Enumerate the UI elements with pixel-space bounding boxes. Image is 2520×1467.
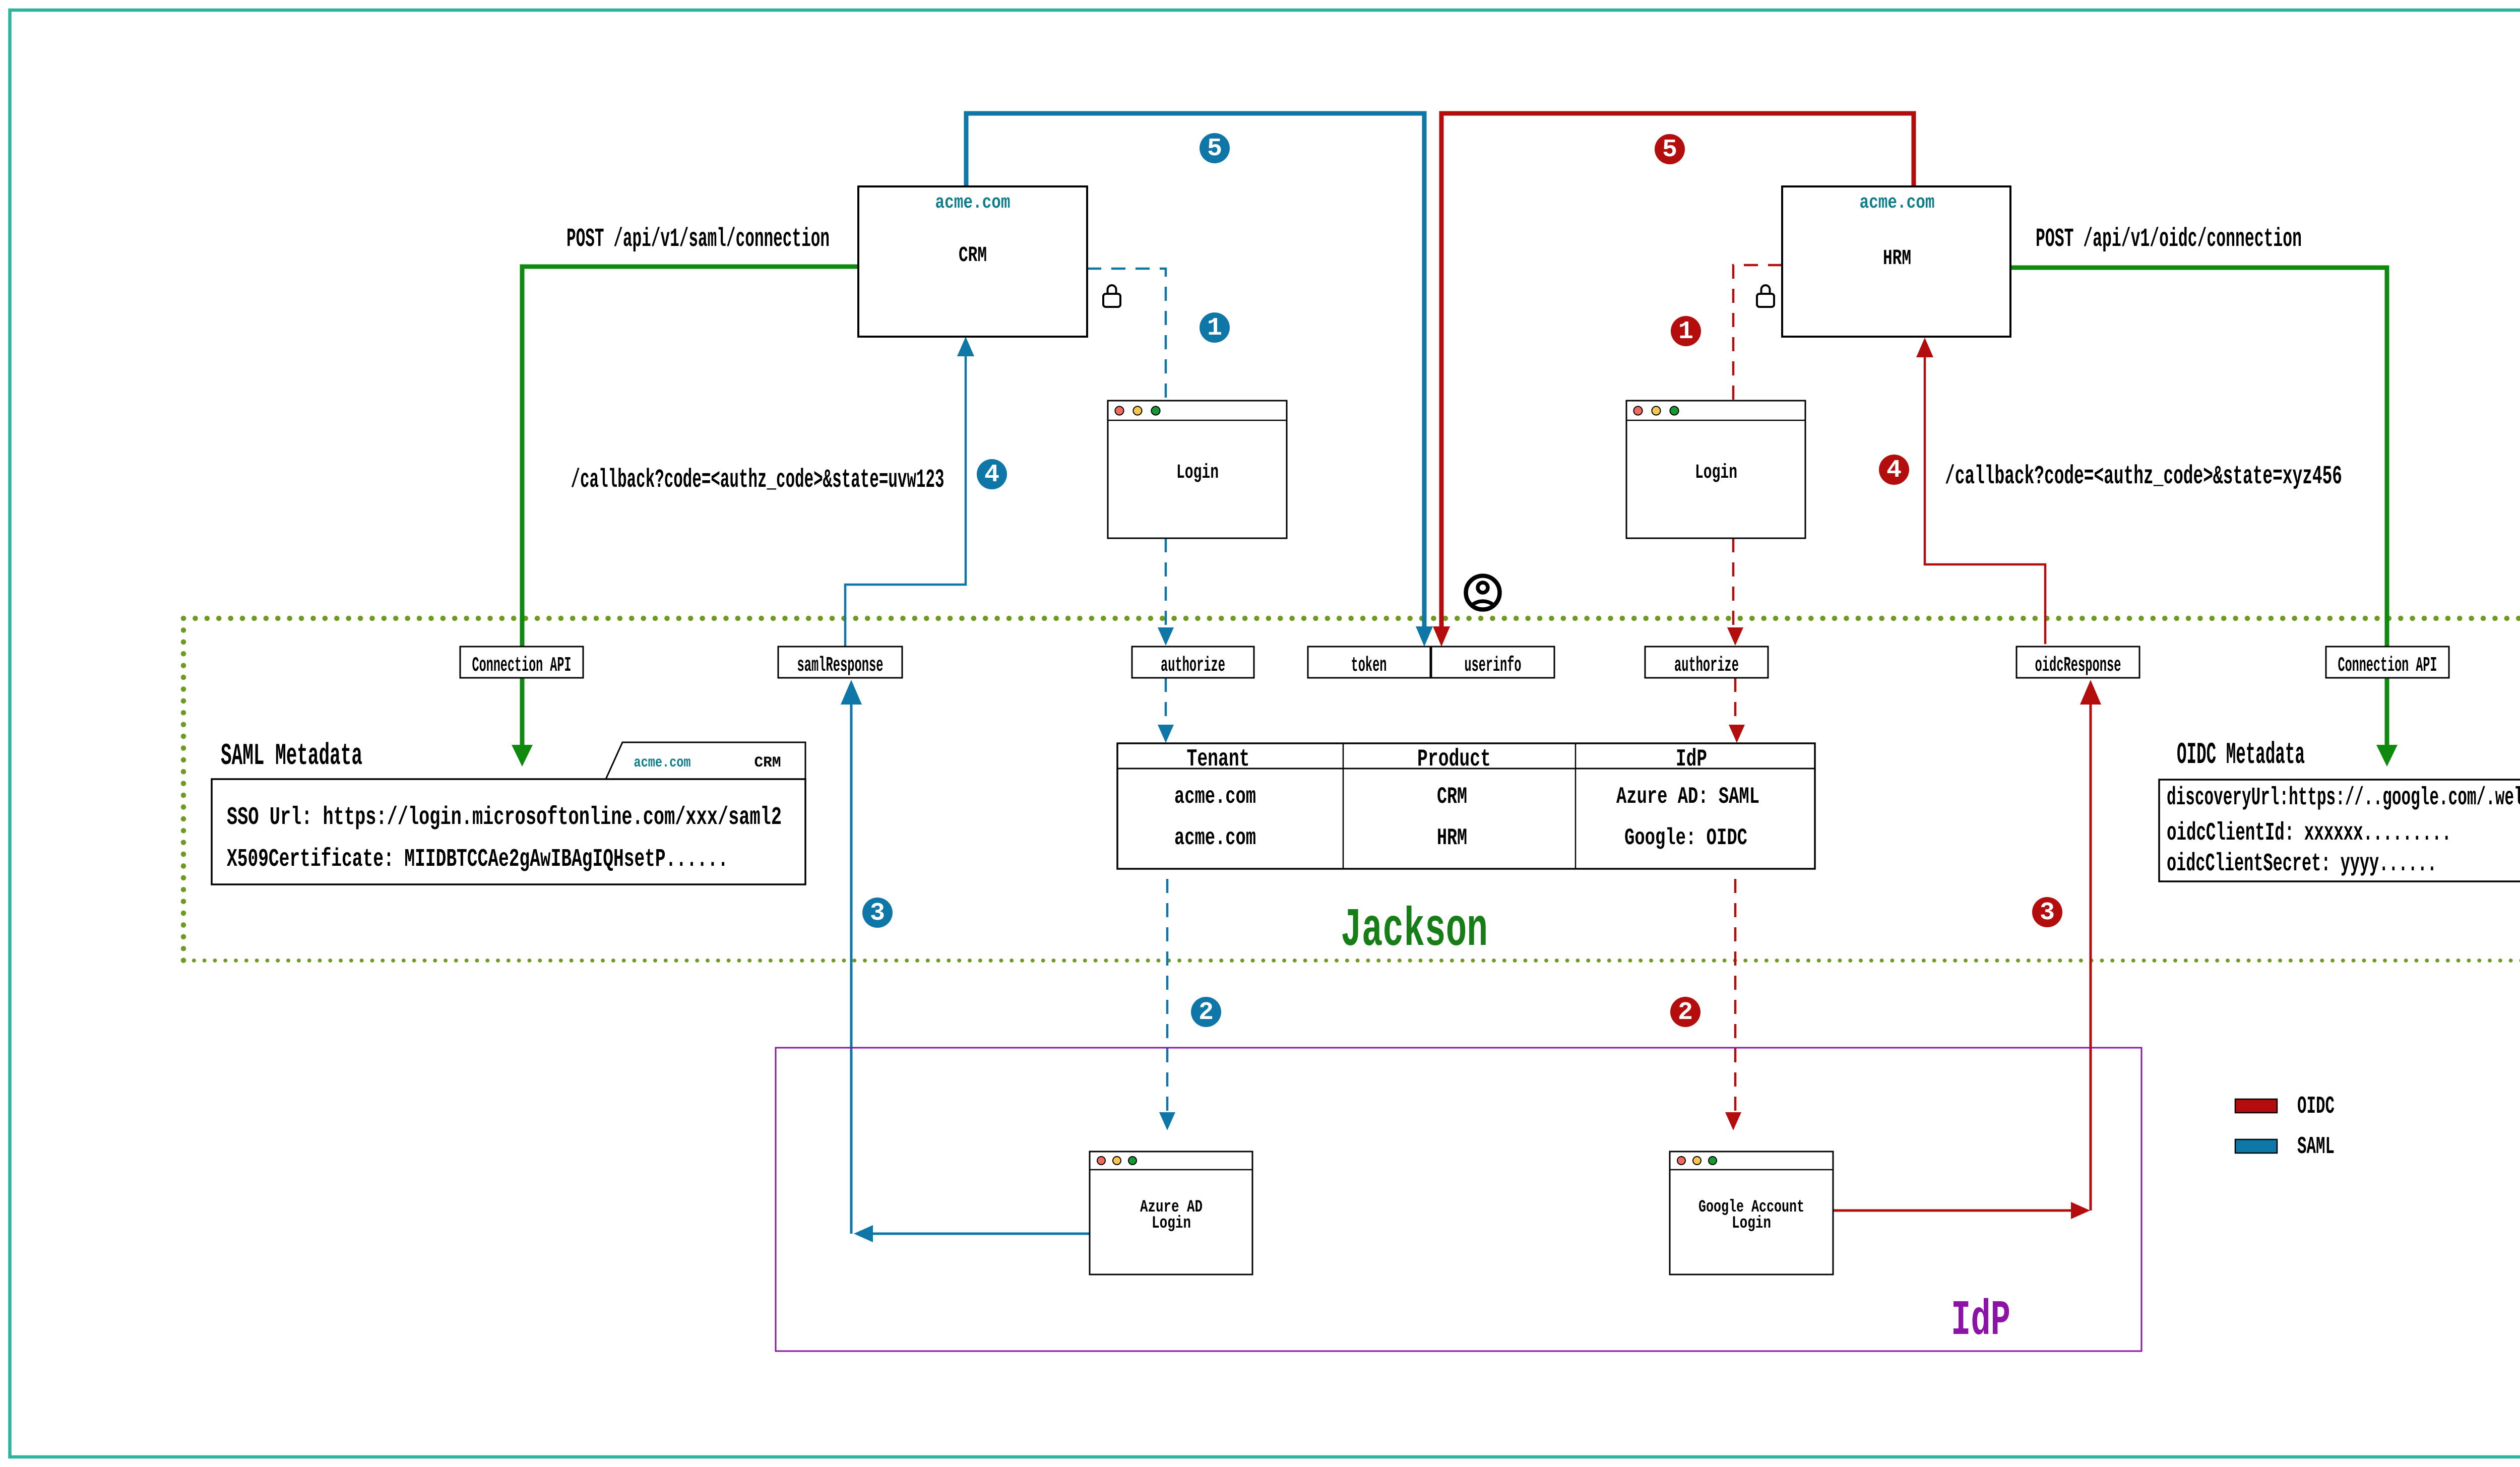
- svg-text:SSO Url: https://login.microso: SSO Url: https://login.microsoftonline.c…: [227, 803, 782, 832]
- svg-text:/callback?code=<authz_code>&st: /callback?code=<authz_code>&state=xyz456: [1945, 462, 2342, 491]
- svg-text:OIDC: OIDC: [2297, 1093, 2335, 1120]
- svg-text:userinfo: userinfo: [1465, 654, 1522, 677]
- svg-text:HRM: HRM: [1883, 246, 1911, 271]
- svg-text:4: 4: [984, 461, 999, 489]
- svg-text:Azure AD: SAML: Azure AD: SAML: [1616, 784, 1759, 810]
- svg-text:oidcClientId: xxxxxx.........: oidcClientId: xxxxxx.........: [2167, 819, 2451, 848]
- svg-text:Tenant: Tenant: [1187, 746, 1250, 773]
- svg-text:IdP: IdP: [1676, 746, 1707, 773]
- svg-text:acme.com: acme.com: [935, 192, 1011, 214]
- svg-text:oidcResponse: oidcResponse: [2035, 654, 2121, 677]
- svg-text:5: 5: [1662, 136, 1677, 164]
- svg-text:5: 5: [1207, 135, 1222, 163]
- svg-text:samlResponse: samlResponse: [797, 654, 884, 677]
- svg-text:Login: Login: [1695, 462, 1737, 484]
- svg-text:authorize: authorize: [1674, 654, 1739, 677]
- svg-text:Jackson: Jackson: [1341, 900, 1488, 962]
- svg-text:authorize: authorize: [1161, 654, 1225, 677]
- svg-text:X509Certificate: MIIDBTCCAe2gA: X509Certificate: MIIDBTCCAe2gAwIBAgIQHse…: [227, 845, 728, 874]
- svg-text:acme.com: acme.com: [1174, 825, 1256, 851]
- svg-text:Login: Login: [1152, 1214, 1191, 1233]
- svg-text:3: 3: [2040, 899, 2055, 927]
- svg-text:acme.com: acme.com: [1860, 192, 1935, 214]
- svg-text:Login: Login: [1732, 1214, 1771, 1233]
- svg-text:3: 3: [870, 899, 885, 928]
- svg-text:1: 1: [1207, 314, 1222, 343]
- svg-text:CRM: CRM: [754, 754, 781, 772]
- svg-text:HRM: HRM: [1437, 825, 1467, 851]
- svg-text:2: 2: [1678, 998, 1693, 1027]
- svg-text:/callback?code=<authz_code>&st: /callback?code=<authz_code>&state=uvw123: [571, 465, 944, 495]
- svg-text:acme.com: acme.com: [1174, 784, 1256, 810]
- svg-text:POST /api/v1/oidc/connection: POST /api/v1/oidc/connection: [2036, 224, 2302, 254]
- svg-text:Login: Login: [1176, 462, 1219, 484]
- svg-text:Google: OIDC: Google: OIDC: [1624, 825, 1747, 851]
- svg-text:2: 2: [1199, 998, 1214, 1027]
- svg-text:oidcClientSecret: yyyy......: oidcClientSecret: yyyy......: [2167, 850, 2437, 878]
- svg-text:OIDC Metadata: OIDC Metadata: [2177, 738, 2305, 773]
- svg-text:Connection API: Connection API: [2338, 654, 2437, 677]
- svg-text:SAML Metadata: SAML Metadata: [221, 739, 362, 774]
- svg-text:4: 4: [1886, 456, 1902, 485]
- svg-text:CRM: CRM: [959, 243, 987, 268]
- svg-text:Product: Product: [1417, 746, 1491, 773]
- svg-text:discoveryUrl:https://..google.: discoveryUrl:https://..google.com/.well-…: [2167, 784, 2520, 812]
- svg-text:POST /api/v1/saml/connection: POST /api/v1/saml/connection: [566, 224, 830, 254]
- svg-text:CRM: CRM: [1437, 784, 1467, 810]
- svg-text:token: token: [1351, 654, 1387, 677]
- svg-text:Connection API: Connection API: [472, 654, 572, 677]
- svg-text:SAML: SAML: [2297, 1133, 2335, 1161]
- svg-text:1: 1: [1678, 317, 1693, 346]
- svg-text:IdP: IdP: [1951, 1293, 2010, 1349]
- svg-text:acme.com: acme.com: [634, 754, 691, 772]
